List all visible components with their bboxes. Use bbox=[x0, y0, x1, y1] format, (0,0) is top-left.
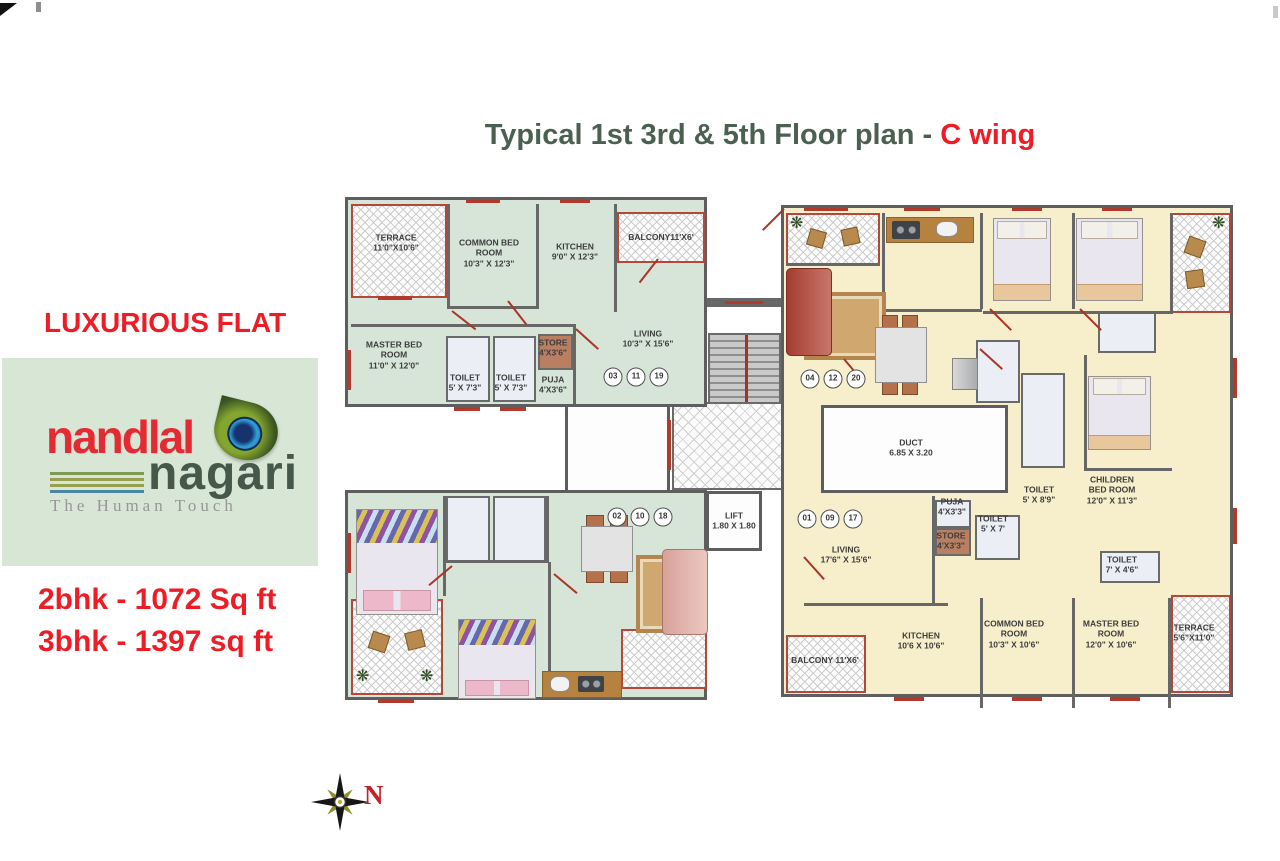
sink-icon bbox=[550, 676, 570, 692]
stove-icon bbox=[578, 676, 604, 692]
bed-blanket bbox=[994, 284, 1050, 300]
bed bbox=[458, 619, 536, 699]
window-marker bbox=[725, 301, 763, 304]
wall bbox=[446, 560, 549, 563]
room-dim: 5' X 7'3" bbox=[441, 383, 489, 393]
flat-number: 02 bbox=[608, 508, 627, 527]
door-swing bbox=[762, 208, 785, 231]
room-label-toilet: TOILET 5' X 7'3" bbox=[441, 373, 489, 394]
room-dim: 5' X 8'9" bbox=[1013, 495, 1065, 505]
bed-pillows bbox=[465, 680, 529, 696]
room-name: LIVING bbox=[614, 329, 682, 339]
flat-number: 19 bbox=[650, 368, 669, 387]
room-name: TERRACE bbox=[359, 233, 433, 243]
flat-number: 01 bbox=[798, 510, 817, 529]
room-dim: 6.85 X 3.20 bbox=[876, 448, 946, 458]
chair bbox=[882, 382, 898, 395]
room-name: BALCONY11'X6' bbox=[615, 232, 707, 242]
room-name: TOILET bbox=[969, 514, 1017, 524]
room-name: TOILET bbox=[1098, 555, 1146, 565]
window-marker bbox=[347, 350, 351, 390]
page-title: Typical 1st 3rd & 5th Floor plan - C win… bbox=[380, 118, 1140, 153]
room-dim: 17'6" X 15'6" bbox=[808, 555, 884, 565]
wall bbox=[546, 496, 549, 562]
room-dim: 5' X 7'3" bbox=[487, 383, 535, 393]
logo-name-bottom: nagari bbox=[148, 450, 298, 498]
logo-rule bbox=[50, 478, 144, 481]
wall bbox=[1072, 213, 1075, 309]
title-main: Typical 1st 3rd & 5th Floor plan - bbox=[485, 119, 940, 151]
flat-number: 12 bbox=[824, 370, 843, 389]
logo-slogan: The Human Touch bbox=[50, 496, 237, 516]
room-dim: 10'3" X 10'6" bbox=[983, 639, 1045, 649]
scan-corner-mark bbox=[1273, 6, 1278, 18]
bed-blanket bbox=[1077, 284, 1142, 300]
wall bbox=[1075, 311, 1173, 314]
wall bbox=[443, 496, 446, 596]
bed-pillows bbox=[1081, 221, 1138, 239]
room-label-toilet: TOILET 5' X 8'9" bbox=[1013, 485, 1065, 506]
room-label-children-bed: CHILDREN BED ROOM 12'0" X 11'3" bbox=[1080, 474, 1144, 505]
window-marker bbox=[378, 699, 414, 703]
duct-shaft-left bbox=[565, 402, 670, 495]
window-marker bbox=[667, 420, 671, 470]
door-swing bbox=[451, 310, 476, 330]
flat-number: 09 bbox=[821, 510, 840, 529]
wall bbox=[1084, 355, 1087, 471]
room-name: TOILET bbox=[441, 373, 489, 383]
wall bbox=[614, 204, 617, 312]
bed-pillows bbox=[997, 221, 1046, 239]
room-label-master-bed: MASTER BED ROOM 11'0" X 12'0" bbox=[362, 339, 426, 370]
compass-rose-icon bbox=[310, 772, 370, 832]
terrace-floor bbox=[1171, 595, 1231, 693]
window-marker bbox=[347, 533, 351, 573]
chair bbox=[610, 571, 628, 583]
window-marker bbox=[1233, 358, 1237, 398]
room-dim: 9'0" X 12'3" bbox=[542, 252, 608, 262]
stair-rail bbox=[745, 335, 748, 408]
room-dim: 12'0" X 10'6" bbox=[1079, 639, 1143, 649]
fridge-icon bbox=[952, 358, 978, 390]
room-dim: 4'X3'6" bbox=[531, 385, 575, 395]
scan-corner-mark bbox=[36, 2, 41, 12]
bed-pillows bbox=[1093, 378, 1147, 394]
room-label-common-bed: COMMON BED ROOM 10'3" X 12'3" bbox=[458, 237, 520, 268]
plant-icon: ❋ bbox=[420, 669, 433, 685]
room-dim: 12'0" X 11'3" bbox=[1080, 495, 1144, 505]
room-dim: 4'X3'3" bbox=[929, 541, 973, 551]
room-name: PUJA bbox=[531, 375, 575, 385]
wall bbox=[351, 324, 573, 327]
room-dim: 11'0"X10'6" bbox=[359, 243, 433, 253]
window-marker bbox=[500, 407, 526, 411]
door-swing bbox=[553, 573, 577, 594]
dining-table bbox=[581, 526, 633, 572]
wall bbox=[980, 213, 983, 309]
stove-icon bbox=[892, 221, 920, 239]
balcony-floor bbox=[621, 629, 707, 689]
scan-corner-mark bbox=[0, 3, 17, 16]
flat-number: 03 bbox=[604, 368, 623, 387]
room-dim: 10'3" X 15'6" bbox=[614, 339, 682, 349]
wall bbox=[804, 603, 948, 606]
wall bbox=[1072, 598, 1075, 708]
room-label-living: LIVING 17'6" X 15'6" bbox=[808, 545, 884, 566]
patio-chair bbox=[840, 226, 860, 246]
window-marker bbox=[1012, 697, 1042, 701]
room-label-toilet: TOILET 7' X 4'6" bbox=[1098, 555, 1146, 576]
toilet-room bbox=[446, 496, 490, 562]
wall bbox=[447, 306, 539, 309]
room-dim: 11'0" X 12'0" bbox=[362, 360, 426, 370]
room-name: COMMON BED ROOM bbox=[983, 618, 1045, 639]
flat-number: 10 bbox=[631, 508, 650, 527]
room-name: CHILDREN BED ROOM bbox=[1080, 474, 1144, 495]
wall bbox=[1084, 468, 1172, 471]
sofa bbox=[662, 549, 708, 635]
bed-blanket bbox=[357, 510, 437, 543]
room-name: KITCHEN bbox=[888, 631, 954, 641]
room-dim: 10'3" X 12'3" bbox=[458, 258, 520, 268]
room-label-master-bed: MASTER BED ROOM 12'0" X 10'6" bbox=[1079, 618, 1143, 649]
bed bbox=[1076, 218, 1143, 301]
room-label-kitchen: KITCHEN 9'0" X 12'3" bbox=[542, 242, 608, 263]
sink-icon bbox=[936, 221, 958, 237]
room-dim: 10'6 X 10'6" bbox=[888, 641, 954, 651]
window-marker bbox=[904, 207, 940, 211]
room-label-store: STORE 4'X3'6" bbox=[531, 338, 575, 359]
wall bbox=[447, 204, 450, 308]
room-name: BALCONY 11'X6' bbox=[780, 655, 870, 665]
title-wing: C wing bbox=[940, 119, 1035, 151]
room-dim: 5'6"X11'0" bbox=[1168, 633, 1220, 643]
logo-rule bbox=[50, 472, 144, 475]
wall bbox=[536, 204, 539, 308]
room-dim: 1.80 X 1.80 bbox=[704, 521, 764, 531]
room-label-lift: LIFT 1.80 X 1.80 bbox=[704, 511, 764, 532]
toilet-room bbox=[493, 496, 546, 562]
logo-rule bbox=[50, 490, 144, 493]
plant-icon: ❋ bbox=[1212, 216, 1225, 232]
chair bbox=[586, 571, 604, 583]
window-marker bbox=[466, 199, 500, 203]
area-2bhk: 2bhk - 1072 Sq ft bbox=[38, 583, 276, 616]
bed-pillows bbox=[363, 590, 430, 611]
room-dim: 4'X3'3" bbox=[930, 507, 974, 517]
wall bbox=[548, 562, 551, 672]
room-label-living: LIVING 10'3" X 15'6" bbox=[614, 329, 682, 350]
window-marker bbox=[378, 296, 412, 300]
room-name: MASTER BED ROOM bbox=[1079, 618, 1143, 639]
room-dim: 7' X 4'6" bbox=[1098, 565, 1146, 575]
room-label-toilet: TOILET 5' X 7' bbox=[969, 514, 1017, 535]
plant-icon: ❋ bbox=[790, 216, 803, 232]
area-3bhk: 3bhk - 1397 sq ft bbox=[38, 625, 273, 658]
flat-number: 17 bbox=[844, 510, 863, 529]
room-label-puja: PUJA 4'X3'3" bbox=[930, 497, 974, 518]
window-marker bbox=[1012, 207, 1042, 211]
room-dim: 5' X 7' bbox=[969, 524, 1017, 534]
wall bbox=[884, 309, 982, 312]
toilet-room bbox=[1021, 373, 1065, 468]
logo-rule bbox=[50, 484, 144, 487]
bed bbox=[993, 218, 1051, 301]
floor-plan: LIFT 1.80 X 1.80 bbox=[345, 195, 1235, 705]
window-marker bbox=[804, 207, 848, 211]
flat-number: 11 bbox=[627, 368, 646, 387]
toilet-room bbox=[1098, 311, 1156, 353]
bed-blanket bbox=[459, 620, 535, 645]
room-name: MASTER BED ROOM bbox=[362, 339, 426, 360]
compass-north-label: N bbox=[364, 782, 384, 809]
room-label-store: STORE 4'X3'3" bbox=[929, 531, 973, 552]
room-name: LIVING bbox=[808, 545, 884, 555]
room-label-terrace: TERRACE 5'6"X11'0" bbox=[1168, 623, 1220, 644]
bed bbox=[1088, 376, 1151, 450]
window-marker bbox=[1110, 697, 1140, 701]
window-marker bbox=[1233, 508, 1237, 544]
room-name: TOILET bbox=[487, 373, 535, 383]
room-name: TOILET bbox=[1013, 485, 1065, 495]
room-label-puja: PUJA 4'X3'6" bbox=[531, 375, 575, 396]
tagline: LUXURIOUS FLAT bbox=[44, 308, 286, 339]
room-label-common-bed: COMMON BED ROOM 10'3" X 10'6" bbox=[983, 618, 1045, 649]
door-swing bbox=[507, 300, 527, 325]
room-name: DUCT bbox=[876, 438, 946, 448]
room-name: KITCHEN bbox=[542, 242, 608, 252]
wall bbox=[1168, 598, 1171, 708]
window-marker bbox=[894, 697, 924, 701]
unit-2bhk-bottom-left: ❋ ❋ bbox=[345, 490, 707, 700]
chair bbox=[902, 382, 918, 395]
flat-number: 04 bbox=[801, 370, 820, 389]
patio-chair bbox=[1185, 269, 1205, 289]
room-name: COMMON BED ROOM bbox=[458, 237, 520, 258]
sofa bbox=[786, 268, 832, 356]
window-marker bbox=[454, 407, 480, 411]
plant-icon: ❋ bbox=[356, 669, 369, 685]
room-label-toilet: TOILET 5' X 7'3" bbox=[487, 373, 535, 394]
door-swing bbox=[575, 328, 599, 350]
logo-panel: nandlal nagari The Human Touch bbox=[2, 358, 318, 566]
bed bbox=[356, 509, 438, 615]
window-marker bbox=[560, 199, 590, 203]
room-name: TERRACE bbox=[1168, 623, 1220, 633]
room-label-kitchen: KITCHEN 10'6 X 10'6" bbox=[888, 631, 954, 652]
wall bbox=[786, 263, 880, 266]
room-name: PUJA bbox=[930, 497, 974, 507]
window-marker bbox=[1102, 207, 1132, 211]
room-name: STORE bbox=[531, 338, 575, 348]
room-label-balcony: BALCONY 11'X6' bbox=[780, 655, 870, 665]
room-dim: 4'X3'6" bbox=[531, 348, 575, 358]
room-name: STORE bbox=[929, 531, 973, 541]
staircase bbox=[708, 333, 781, 410]
wall bbox=[1170, 213, 1173, 311]
dining-table bbox=[875, 327, 927, 383]
room-name: LIFT bbox=[704, 511, 764, 521]
flat-number: 20 bbox=[847, 370, 866, 389]
room-label-balcony: BALCONY11'X6' bbox=[615, 232, 707, 242]
flat-number: 18 bbox=[654, 508, 673, 527]
bed-blanket bbox=[1089, 435, 1150, 449]
room-label-terrace: TERRACE 11'0"X10'6" bbox=[359, 233, 433, 254]
room-label-duct: DUCT 6.85 X 3.20 bbox=[876, 438, 946, 459]
wall bbox=[980, 598, 983, 708]
